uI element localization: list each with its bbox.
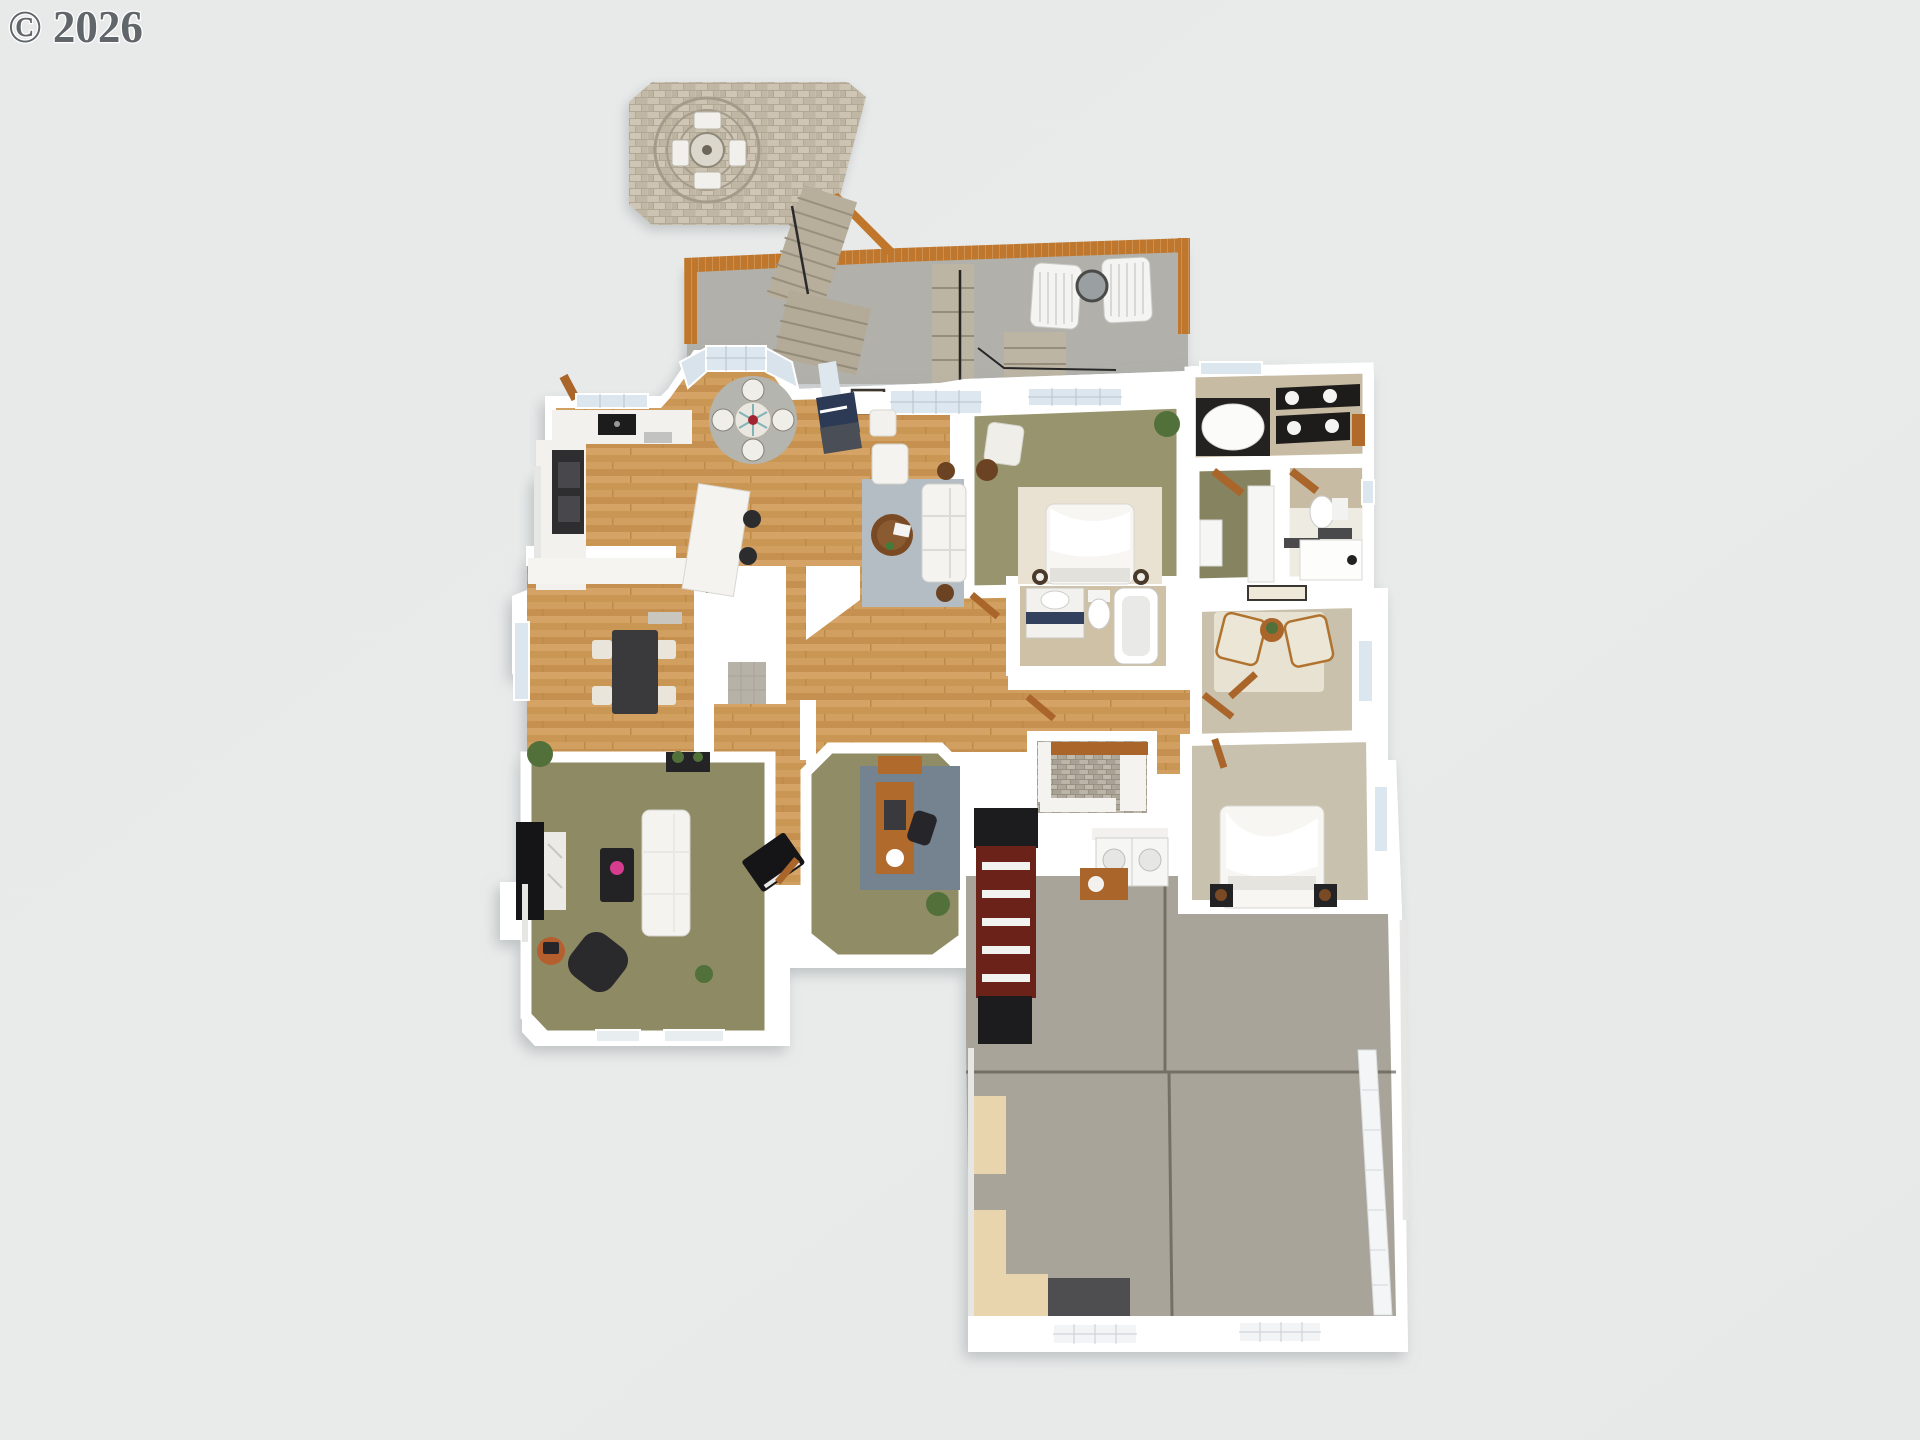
svg-text:© 2026: © 2026 <box>8 2 143 52</box>
